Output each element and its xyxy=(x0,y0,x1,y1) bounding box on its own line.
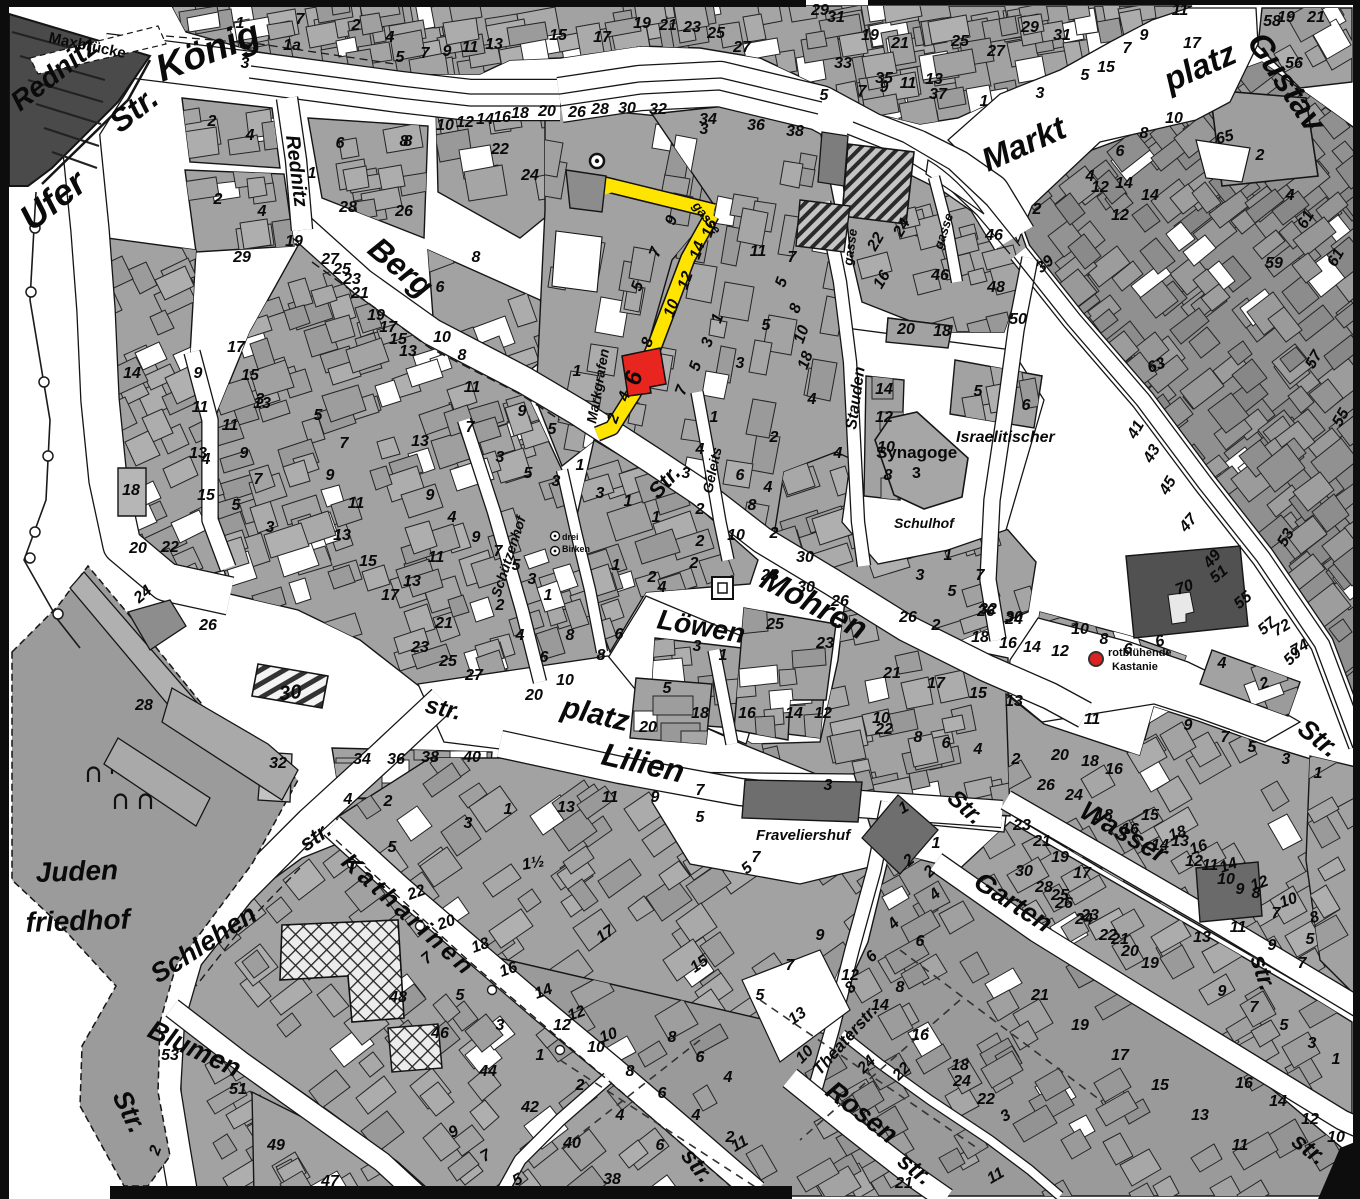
svg-text:17: 17 xyxy=(1073,865,1092,882)
svg-text:12: 12 xyxy=(456,114,474,131)
svg-text:13: 13 xyxy=(1005,693,1023,710)
svg-text:7: 7 xyxy=(752,849,762,866)
svg-text:21: 21 xyxy=(434,615,453,632)
svg-text:18: 18 xyxy=(933,323,951,340)
svg-text:4: 4 xyxy=(657,579,667,596)
svg-text:26: 26 xyxy=(394,203,413,220)
svg-text:30: 30 xyxy=(796,549,814,566)
svg-text:32: 32 xyxy=(269,755,287,772)
svg-text:17: 17 xyxy=(927,675,946,692)
svg-text:25: 25 xyxy=(438,653,458,670)
svg-text:16: 16 xyxy=(1105,761,1123,778)
svg-text:Kastanie: Kastanie xyxy=(1112,661,1158,673)
svg-text:18: 18 xyxy=(951,1057,969,1074)
svg-text:25: 25 xyxy=(706,25,726,42)
svg-text:36: 36 xyxy=(747,117,765,134)
svg-text:8: 8 xyxy=(597,647,606,664)
svg-text:5: 5 xyxy=(396,49,406,66)
svg-text:10: 10 xyxy=(1327,1129,1345,1146)
svg-text:23: 23 xyxy=(682,19,701,36)
svg-text:5: 5 xyxy=(762,317,772,334)
svg-text:21: 21 xyxy=(1306,9,1325,26)
svg-text:19: 19 xyxy=(1141,955,1159,972)
svg-text:15: 15 xyxy=(969,685,988,702)
svg-text:Fraveliershuf: Fraveliershuf xyxy=(756,827,852,844)
svg-text:17: 17 xyxy=(1111,1047,1130,1064)
svg-text:9: 9 xyxy=(1236,881,1245,898)
svg-text:2: 2 xyxy=(575,1077,585,1094)
svg-text:4: 4 xyxy=(723,1069,733,1086)
svg-text:11: 11 xyxy=(1230,919,1247,936)
svg-text:9: 9 xyxy=(240,445,249,462)
svg-text:2: 2 xyxy=(351,17,361,34)
svg-text:6: 6 xyxy=(916,933,925,950)
svg-text:18: 18 xyxy=(971,629,989,646)
svg-text:3: 3 xyxy=(693,638,702,655)
svg-text:4: 4 xyxy=(447,509,457,526)
svg-text:4: 4 xyxy=(245,127,255,144)
svg-text:48: 48 xyxy=(388,989,407,1006)
svg-text:27: 27 xyxy=(732,39,752,56)
svg-text:2: 2 xyxy=(695,533,705,550)
svg-text:24: 24 xyxy=(1004,611,1023,628)
svg-text:11: 11 xyxy=(1232,1137,1249,1154)
svg-text:3: 3 xyxy=(596,485,605,502)
svg-text:11: 11 xyxy=(348,495,365,512)
svg-text:31: 31 xyxy=(827,9,845,26)
svg-text:7: 7 xyxy=(1272,905,1282,922)
svg-text:3: 3 xyxy=(1036,85,1045,102)
svg-text:5: 5 xyxy=(820,87,830,104)
svg-text:23: 23 xyxy=(815,635,834,652)
svg-text:9: 9 xyxy=(472,529,481,546)
svg-text:18: 18 xyxy=(1095,807,1113,824)
svg-text:18: 18 xyxy=(122,482,140,499)
svg-text:9: 9 xyxy=(1140,27,1149,44)
svg-text:22: 22 xyxy=(874,721,893,738)
svg-text:26: 26 xyxy=(198,617,217,634)
svg-text:15: 15 xyxy=(1097,59,1116,76)
svg-text:14: 14 xyxy=(1151,837,1169,854)
svg-text:4: 4 xyxy=(385,29,395,46)
svg-text:18: 18 xyxy=(691,705,709,722)
svg-text:58: 58 xyxy=(1263,13,1281,30)
svg-text:3: 3 xyxy=(528,571,537,588)
svg-text:6: 6 xyxy=(658,1085,667,1102)
svg-text:7: 7 xyxy=(1123,40,1133,57)
svg-text:56: 56 xyxy=(1285,55,1303,72)
svg-text:12: 12 xyxy=(1185,853,1203,870)
svg-text:11: 11 xyxy=(602,789,619,806)
svg-text:11: 11 xyxy=(900,75,917,92)
svg-text:12: 12 xyxy=(1111,207,1129,224)
svg-text:10: 10 xyxy=(587,1039,605,1056)
svg-text:11: 11 xyxy=(750,243,767,260)
svg-text:20: 20 xyxy=(128,540,147,557)
svg-text:5: 5 xyxy=(1081,67,1091,84)
svg-text:Birken: Birken xyxy=(562,544,590,554)
svg-text:18: 18 xyxy=(511,105,529,122)
svg-text:5: 5 xyxy=(1248,739,1258,756)
svg-text:16: 16 xyxy=(1121,821,1139,838)
svg-text:13: 13 xyxy=(1171,833,1189,850)
svg-text:5: 5 xyxy=(388,839,398,856)
svg-text:13: 13 xyxy=(485,36,503,53)
svg-text:29: 29 xyxy=(1020,19,1039,36)
svg-text:22: 22 xyxy=(160,539,179,556)
svg-text:6: 6 xyxy=(656,1137,665,1154)
svg-text:6: 6 xyxy=(540,649,549,666)
svg-text:3: 3 xyxy=(552,473,561,490)
svg-text:15: 15 xyxy=(359,553,378,570)
svg-text:1: 1 xyxy=(710,409,719,426)
svg-text:19: 19 xyxy=(1071,1017,1089,1034)
svg-text:10: 10 xyxy=(1217,871,1235,888)
svg-text:21: 21 xyxy=(1032,833,1051,850)
svg-text:20: 20 xyxy=(537,103,556,120)
svg-text:49: 49 xyxy=(266,1137,285,1154)
svg-text:5: 5 xyxy=(232,497,242,514)
svg-text:11: 11 xyxy=(1084,711,1101,728)
svg-text:10: 10 xyxy=(1071,621,1089,638)
svg-text:2: 2 xyxy=(1011,751,1021,768)
svg-text:19: 19 xyxy=(633,15,651,32)
svg-text:30: 30 xyxy=(618,100,636,117)
svg-text:1: 1 xyxy=(719,647,728,664)
svg-text:9: 9 xyxy=(443,43,452,60)
svg-text:34: 34 xyxy=(699,111,717,128)
svg-text:26: 26 xyxy=(898,609,917,626)
svg-text:8: 8 xyxy=(458,347,467,364)
svg-text:1: 1 xyxy=(573,363,582,380)
svg-text:36: 36 xyxy=(387,751,405,768)
svg-text:13: 13 xyxy=(411,433,429,450)
svg-text:2: 2 xyxy=(695,501,705,518)
svg-text:3: 3 xyxy=(736,355,745,372)
svg-text:3: 3 xyxy=(912,465,921,482)
svg-text:4: 4 xyxy=(833,445,843,462)
svg-text:23: 23 xyxy=(410,639,429,656)
svg-text:38: 38 xyxy=(603,1171,621,1188)
svg-text:2: 2 xyxy=(769,429,779,446)
svg-text:14: 14 xyxy=(123,365,141,382)
svg-text:11: 11 xyxy=(464,379,481,396)
svg-text:59: 59 xyxy=(1265,255,1283,272)
svg-text:10: 10 xyxy=(727,527,745,544)
svg-text:3: 3 xyxy=(682,465,691,482)
svg-text:6: 6 xyxy=(336,135,345,152)
svg-text:10: 10 xyxy=(556,672,574,689)
svg-text:4: 4 xyxy=(257,203,267,220)
svg-text:10: 10 xyxy=(433,329,451,346)
svg-text:28: 28 xyxy=(590,101,609,118)
svg-text:2: 2 xyxy=(495,597,505,614)
svg-text:13: 13 xyxy=(1193,929,1211,946)
svg-text:8: 8 xyxy=(626,1063,635,1080)
svg-text:7: 7 xyxy=(786,957,796,974)
svg-text:22: 22 xyxy=(490,141,509,158)
svg-text:8: 8 xyxy=(1252,885,1261,902)
svg-text:20: 20 xyxy=(896,321,915,338)
svg-text:17: 17 xyxy=(1183,35,1202,52)
svg-text:9: 9 xyxy=(426,487,435,504)
svg-text:5: 5 xyxy=(512,557,522,574)
svg-text:7: 7 xyxy=(466,419,476,436)
svg-text:5: 5 xyxy=(456,987,466,1004)
svg-text:13: 13 xyxy=(333,527,351,544)
svg-text:7: 7 xyxy=(421,45,431,62)
svg-text:15: 15 xyxy=(241,367,260,384)
svg-text:4: 4 xyxy=(1217,655,1227,672)
svg-text:8: 8 xyxy=(896,979,905,996)
svg-text:4: 4 xyxy=(343,791,353,808)
svg-text:38: 38 xyxy=(786,123,804,140)
svg-text:48: 48 xyxy=(986,279,1005,296)
svg-text:5: 5 xyxy=(314,407,324,424)
svg-text:1a: 1a xyxy=(283,37,301,54)
svg-text:8: 8 xyxy=(1140,125,1149,142)
svg-text:24: 24 xyxy=(520,167,539,184)
svg-text:12: 12 xyxy=(1091,179,1109,196)
svg-text:22: 22 xyxy=(976,1091,995,1108)
svg-text:12: 12 xyxy=(841,967,859,984)
svg-text:21: 21 xyxy=(350,285,369,302)
svg-text:8: 8 xyxy=(404,133,413,150)
svg-text:17: 17 xyxy=(593,29,612,46)
svg-text:24: 24 xyxy=(1064,787,1083,804)
svg-text:14: 14 xyxy=(1115,175,1133,192)
svg-text:19: 19 xyxy=(861,27,879,44)
svg-text:12: 12 xyxy=(814,705,832,722)
svg-text:9: 9 xyxy=(518,403,527,420)
svg-text:1: 1 xyxy=(980,93,989,110)
svg-text:13: 13 xyxy=(399,343,417,360)
svg-text:1: 1 xyxy=(1314,765,1323,782)
svg-text:38: 38 xyxy=(421,749,439,766)
svg-text:20: 20 xyxy=(524,687,543,704)
svg-text:5: 5 xyxy=(948,583,958,600)
svg-text:28: 28 xyxy=(338,199,357,216)
svg-text:14: 14 xyxy=(1023,639,1041,656)
svg-text:4: 4 xyxy=(615,1107,625,1124)
svg-text:9: 9 xyxy=(816,927,825,944)
svg-text:26: 26 xyxy=(830,593,849,610)
svg-text:12: 12 xyxy=(1051,643,1069,660)
svg-text:3: 3 xyxy=(916,567,925,584)
svg-text:1: 1 xyxy=(576,457,585,474)
svg-text:16: 16 xyxy=(911,1027,929,1044)
svg-text:12: 12 xyxy=(875,409,893,426)
svg-text:9: 9 xyxy=(194,365,203,382)
svg-text:3: 3 xyxy=(1308,1035,1317,1052)
svg-text:12: 12 xyxy=(553,1017,571,1034)
svg-text:21: 21 xyxy=(890,35,909,52)
svg-text:6: 6 xyxy=(1116,143,1125,160)
svg-text:1: 1 xyxy=(1332,1051,1341,1068)
svg-text:14: 14 xyxy=(1141,187,1159,204)
svg-text:16: 16 xyxy=(999,635,1017,652)
svg-text:10: 10 xyxy=(877,439,895,456)
svg-text:30: 30 xyxy=(1015,863,1033,880)
svg-text:2: 2 xyxy=(1255,147,1265,164)
svg-text:33: 33 xyxy=(834,55,852,72)
svg-text:6: 6 xyxy=(615,626,624,643)
svg-text:2: 2 xyxy=(213,191,223,208)
svg-text:19: 19 xyxy=(1051,849,1069,866)
svg-text:16: 16 xyxy=(738,705,756,722)
svg-text:25: 25 xyxy=(765,616,785,633)
svg-text:4: 4 xyxy=(973,741,983,758)
svg-text:4: 4 xyxy=(691,1107,701,1124)
svg-text:9: 9 xyxy=(1184,717,1193,734)
svg-text:16: 16 xyxy=(1235,1075,1253,1092)
svg-text:3: 3 xyxy=(266,519,275,536)
svg-text:1: 1 xyxy=(544,587,553,604)
svg-text:6: 6 xyxy=(942,735,951,752)
svg-text:friedhof: friedhof xyxy=(25,903,133,938)
svg-text:9: 9 xyxy=(326,467,335,484)
svg-text:9: 9 xyxy=(1268,937,1277,954)
svg-text:51: 51 xyxy=(229,1081,247,1098)
svg-text:6: 6 xyxy=(1124,641,1133,658)
svg-text:11: 11 xyxy=(192,399,209,416)
svg-text:21: 21 xyxy=(894,1175,913,1192)
svg-text:5: 5 xyxy=(756,987,766,1004)
svg-text:3: 3 xyxy=(824,777,833,794)
svg-text:53: 53 xyxy=(161,1047,179,1064)
svg-text:26: 26 xyxy=(976,603,995,620)
svg-text:8: 8 xyxy=(1100,631,1109,648)
svg-text:18: 18 xyxy=(1081,753,1099,770)
svg-text:5: 5 xyxy=(1280,1017,1290,1034)
svg-text:Israelitischer: Israelitischer xyxy=(956,429,1056,446)
svg-text:27: 27 xyxy=(986,43,1006,60)
svg-text:1: 1 xyxy=(944,547,953,564)
svg-text:8: 8 xyxy=(884,467,893,484)
svg-text:42: 42 xyxy=(520,1099,539,1116)
svg-text:26: 26 xyxy=(567,104,586,121)
svg-text:2: 2 xyxy=(769,525,779,542)
svg-text:9: 9 xyxy=(651,789,660,806)
svg-text:7: 7 xyxy=(494,543,504,560)
svg-text:7: 7 xyxy=(296,11,306,28)
svg-text:2: 2 xyxy=(689,555,699,572)
svg-text:23: 23 xyxy=(1080,907,1099,924)
svg-text:5: 5 xyxy=(696,809,706,826)
svg-text:34: 34 xyxy=(353,751,371,768)
svg-text:14: 14 xyxy=(476,111,494,128)
svg-text:20: 20 xyxy=(1050,747,1069,764)
svg-text:17: 17 xyxy=(227,339,246,356)
svg-text:14: 14 xyxy=(785,705,803,722)
svg-text:7: 7 xyxy=(254,471,264,488)
svg-text:15: 15 xyxy=(1141,807,1160,824)
svg-text:15: 15 xyxy=(549,27,568,44)
svg-text:25: 25 xyxy=(1050,887,1070,904)
svg-text:1: 1 xyxy=(932,835,941,852)
svg-text:20: 20 xyxy=(638,719,657,736)
svg-text:2: 2 xyxy=(207,113,217,130)
svg-text:7: 7 xyxy=(696,782,706,799)
svg-text:37: 37 xyxy=(929,86,948,103)
svg-text:25: 25 xyxy=(950,33,970,50)
svg-text:13: 13 xyxy=(557,799,575,816)
svg-text:1: 1 xyxy=(308,165,317,182)
svg-text:7: 7 xyxy=(1298,955,1308,972)
svg-text:1: 1 xyxy=(536,1047,545,1064)
svg-text:15: 15 xyxy=(1151,1077,1170,1094)
svg-text:7: 7 xyxy=(858,83,868,100)
svg-text:7: 7 xyxy=(976,567,986,584)
svg-text:5: 5 xyxy=(974,383,984,400)
svg-text:3: 3 xyxy=(496,449,505,466)
svg-text:1: 1 xyxy=(504,801,513,818)
svg-text:13: 13 xyxy=(189,445,207,462)
svg-text:8: 8 xyxy=(748,497,757,514)
svg-text:27: 27 xyxy=(464,667,484,684)
svg-text:6: 6 xyxy=(696,1049,705,1066)
svg-text:7: 7 xyxy=(340,435,350,452)
svg-text:24: 24 xyxy=(952,1073,971,1090)
svg-text:8: 8 xyxy=(566,627,575,644)
svg-text:5: 5 xyxy=(548,421,558,438)
svg-text:16: 16 xyxy=(493,109,511,126)
svg-text:11: 11 xyxy=(462,39,479,56)
svg-text:40: 40 xyxy=(462,749,481,766)
svg-text:7: 7 xyxy=(1221,729,1231,746)
svg-text:5: 5 xyxy=(1306,931,1316,948)
svg-text:14: 14 xyxy=(875,381,893,398)
svg-text:2: 2 xyxy=(1032,201,1042,218)
svg-text:7: 7 xyxy=(788,249,798,266)
svg-text:15: 15 xyxy=(197,487,216,504)
svg-text:2: 2 xyxy=(647,569,657,586)
svg-text:8: 8 xyxy=(914,729,923,746)
svg-text:6: 6 xyxy=(436,279,445,296)
svg-text:10: 10 xyxy=(436,117,454,134)
svg-text:5: 5 xyxy=(524,465,534,482)
svg-text:23: 23 xyxy=(1012,817,1031,834)
svg-text:12: 12 xyxy=(1301,1111,1319,1128)
svg-text:13: 13 xyxy=(403,573,421,590)
svg-text:1: 1 xyxy=(652,509,661,526)
svg-text:Schulhof: Schulhof xyxy=(894,515,955,531)
svg-text:11: 11 xyxy=(1202,857,1219,874)
svg-text:8: 8 xyxy=(668,1029,677,1046)
svg-text:46: 46 xyxy=(984,227,1003,244)
svg-text:21: 21 xyxy=(658,17,677,34)
svg-text:4: 4 xyxy=(695,441,705,458)
svg-text:11: 11 xyxy=(222,417,239,434)
svg-text:26: 26 xyxy=(1036,777,1055,794)
svg-text:Juden: Juden xyxy=(35,854,119,888)
svg-text:8: 8 xyxy=(472,249,481,266)
svg-text:31: 31 xyxy=(1053,27,1071,44)
svg-text:5: 5 xyxy=(663,680,673,697)
svg-text:35: 35 xyxy=(875,70,894,87)
svg-text:3: 3 xyxy=(1282,751,1291,768)
svg-text:3: 3 xyxy=(464,815,473,832)
svg-text:9: 9 xyxy=(1218,983,1227,1000)
svg-text:1: 1 xyxy=(624,493,633,510)
svg-text:7: 7 xyxy=(1250,999,1260,1016)
svg-text:21: 21 xyxy=(1110,931,1129,948)
svg-text:1: 1 xyxy=(236,15,245,32)
svg-text:30: 30 xyxy=(278,681,302,705)
svg-text:10: 10 xyxy=(1165,110,1183,127)
svg-text:19: 19 xyxy=(285,233,303,250)
svg-text:46: 46 xyxy=(930,267,949,284)
